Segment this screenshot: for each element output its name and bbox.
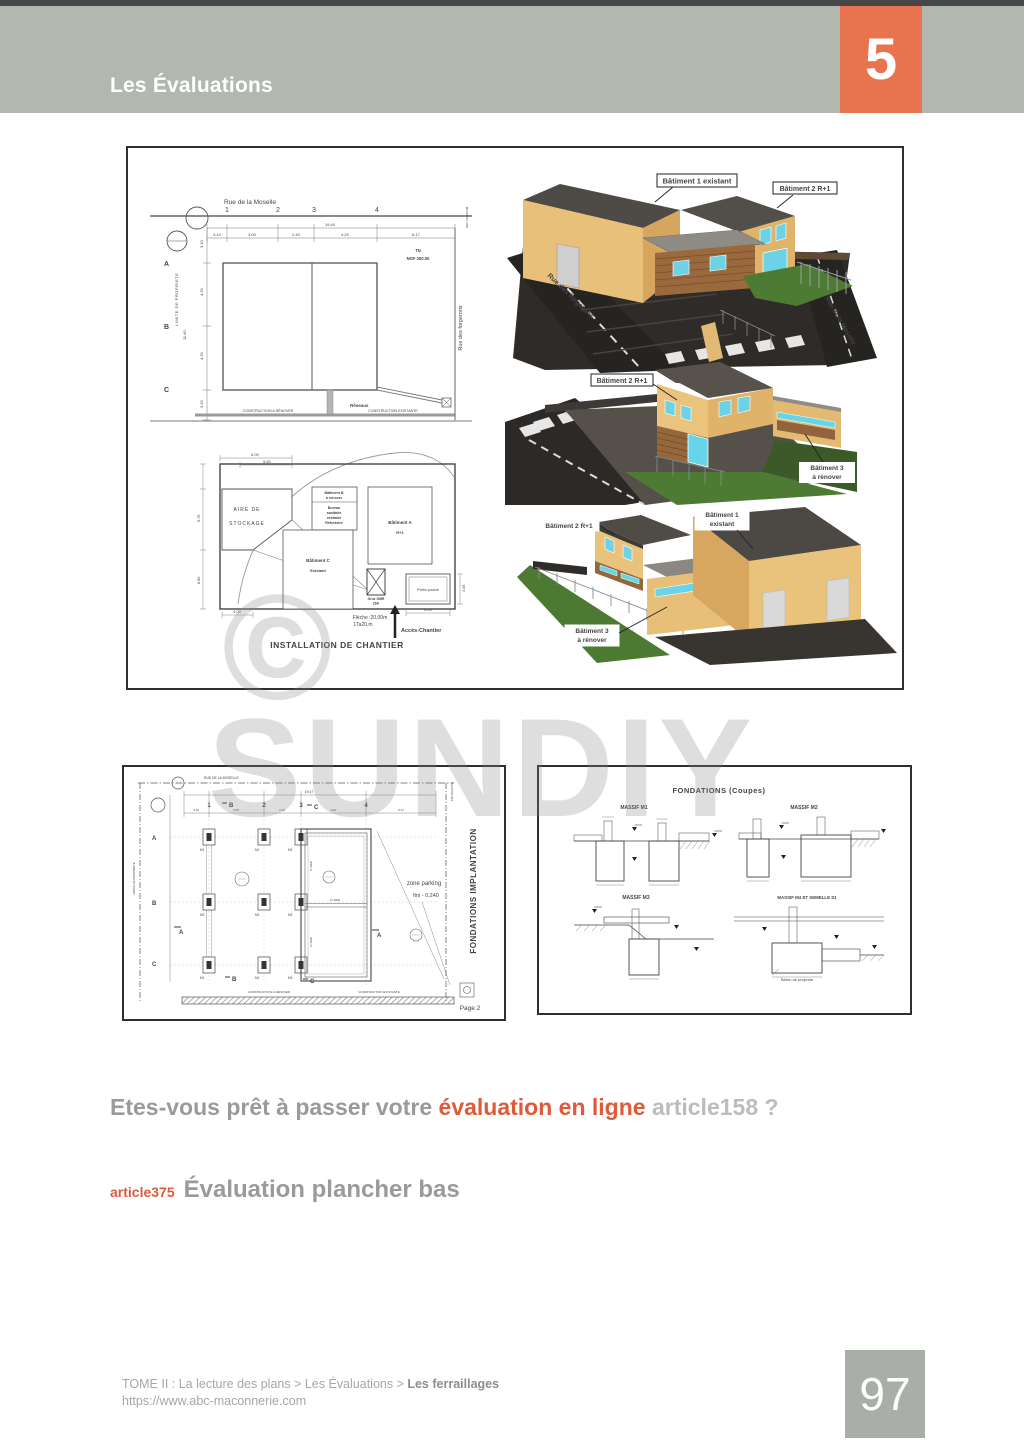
zone-parking-level: fini - 0,240 bbox=[413, 893, 439, 899]
aire-label: STOCKAGE bbox=[229, 521, 265, 527]
svg-text:M1: M1 bbox=[255, 976, 260, 980]
svg-text:LT 40/30: LT 40/30 bbox=[330, 898, 341, 902]
svg-text:Bâtiment B: Bâtiment B bbox=[325, 491, 344, 495]
svg-text:3.15: 3.15 bbox=[199, 399, 204, 408]
svg-text:1: 1 bbox=[207, 803, 211, 809]
page-number-badge: 97 bbox=[845, 1350, 925, 1438]
svg-text:M1: M1 bbox=[200, 976, 205, 980]
svg-text:4.05: 4.05 bbox=[462, 585, 466, 592]
svg-text:C: C bbox=[314, 805, 319, 811]
svg-text:2: 2 bbox=[276, 207, 280, 214]
street-right-label: Rue des forgerons bbox=[458, 305, 464, 350]
svg-text:C: C bbox=[310, 979, 315, 985]
svg-text:M1: M1 bbox=[255, 848, 260, 852]
svg-text:B: B bbox=[164, 324, 169, 331]
render1-building2-label: Bâtiment 2 R+1 bbox=[780, 186, 831, 193]
svg-text:3: 3 bbox=[299, 803, 303, 809]
render1-building1-label: Bâtiment 1 existant bbox=[663, 177, 732, 186]
footings: M1 M1 M2 M2 M2 M3 M1 M1 M3 bbox=[200, 829, 307, 980]
svg-text:B: B bbox=[152, 901, 157, 907]
batiment-c-state: Existant bbox=[310, 568, 326, 573]
fondations-coupes-drawing: FONDATIONS (Coupes) MASSIF M1 MASSIF M2 … bbox=[539, 767, 906, 1009]
batiment-a-label: Bâtiment A bbox=[388, 520, 412, 525]
render3-building1-label: Bâtiment 1 bbox=[705, 512, 739, 519]
article-heading: article375 Évaluation plancher bas bbox=[110, 1176, 460, 1204]
zone-parking-label: zone parking bbox=[407, 881, 441, 887]
svg-text:LT 40/30: LT 40/30 bbox=[309, 860, 313, 871]
breadcrumb-path: TOME II : La lecture des plans > Les Éva… bbox=[122, 1377, 407, 1391]
coupes-title: FONDATIONS (Coupes) bbox=[672, 786, 765, 795]
svg-text:3.00: 3.00 bbox=[248, 232, 257, 237]
article-title: Évaluation plancher bas bbox=[184, 1176, 460, 1204]
poutre-label: Préfa poutre bbox=[417, 587, 440, 592]
svg-text:4.20: 4.20 bbox=[341, 232, 350, 237]
svg-text:M2: M2 bbox=[288, 848, 293, 852]
svg-text:M2: M2 bbox=[200, 913, 205, 917]
grid-row-labels: A B C bbox=[164, 261, 169, 394]
svg-text:sanitaire: sanitaire bbox=[327, 511, 342, 515]
tn-label: TN bbox=[415, 248, 421, 253]
svg-text:2.40: 2.40 bbox=[279, 808, 285, 812]
batiment-a-level: R+1 bbox=[396, 530, 404, 535]
svg-text:3.10: 3.10 bbox=[199, 239, 204, 248]
svg-text:6.00: 6.00 bbox=[251, 453, 258, 457]
render-1-aerial-view: Bâtiment 1 existant Bâtiment 2 R+1 Rue d… bbox=[505, 158, 897, 373]
installation-chantier-drawing: AIRE DE STOCKAGE Bâtiment B à rénover Bu… bbox=[155, 432, 490, 682]
dim-labels-top: 3.10 3.00 2.40 4.20 6.17 bbox=[213, 232, 421, 237]
footer-breadcrumb: TOME II : La lecture des plans > Les Éva… bbox=[122, 1376, 499, 1410]
svg-text:4.00: 4.00 bbox=[233, 610, 240, 614]
svg-text:4.20: 4.20 bbox=[199, 287, 204, 296]
svg-text:5.75: 5.75 bbox=[197, 515, 201, 522]
acces-label: Accès-Chantier bbox=[401, 628, 442, 634]
page-ref: Page 2 bbox=[460, 1005, 481, 1012]
render3-building3-state: à rénover bbox=[577, 637, 607, 644]
site-plan-drawing: Rue de la Moselle 1 2 3 4 19.40 3.10 3.0… bbox=[150, 188, 485, 433]
question-article-ref: article158 ? bbox=[646, 1094, 779, 1120]
grid-column-labels: 1 2 3 4 bbox=[225, 207, 379, 214]
grue-label: Grue GMR bbox=[368, 597, 385, 601]
render3-building2-label: Bâtiment 2 R+1 bbox=[545, 523, 593, 530]
property-limit-label: LIMITE DE PROPRIETE bbox=[174, 273, 179, 326]
render-2-street-view: Bâtiment 2 R+1 Bâtiment 3 à rénover bbox=[505, 360, 897, 505]
svg-text:C: C bbox=[152, 962, 157, 968]
detail-m3 bbox=[574, 907, 714, 979]
svg-text:6.17: 6.17 bbox=[398, 808, 404, 812]
article-tag: article375 bbox=[110, 1184, 175, 1200]
render-3-garden-view: Bâtiment 2 R+1 Bâtiment 1 existant Bâtim… bbox=[505, 505, 897, 665]
svg-text:4: 4 bbox=[375, 207, 379, 214]
svg-text:2: 2 bbox=[262, 803, 266, 809]
svg-text:CONSTRUCTION EXISTANTE: CONSTRUCTION EXISTANTE bbox=[358, 990, 399, 994]
batiment-c-label: Bâtiment C bbox=[306, 558, 331, 563]
detail-m1 bbox=[574, 817, 722, 885]
svg-text:M2: M2 bbox=[255, 913, 260, 917]
dim-labels-left: 3.10 4.20 4.20 3.15 11.60 bbox=[182, 239, 204, 408]
svg-text:1: 1 bbox=[225, 207, 229, 214]
svg-text:Bureau: Bureau bbox=[328, 506, 340, 510]
massif-m2-label: MASSIF M2 bbox=[790, 805, 817, 811]
question-prefix: Etes-vous prêt à passer votre bbox=[110, 1094, 439, 1120]
dim-label: 19.40 bbox=[325, 222, 336, 227]
svg-text:3: 3 bbox=[312, 207, 316, 214]
svg-text:Réfectoire: Réfectoire bbox=[325, 521, 343, 525]
svg-text:C: C bbox=[164, 387, 169, 394]
reseaux-label: Réseaux bbox=[350, 403, 369, 408]
svg-text:A: A bbox=[164, 261, 169, 268]
svg-text:3.10: 3.10 bbox=[213, 232, 222, 237]
svg-text:à rénover: à rénover bbox=[326, 496, 343, 500]
massif-m1-label: MASSIF M1 bbox=[620, 805, 647, 811]
building-footprint bbox=[223, 263, 377, 390]
svg-text:A: A bbox=[179, 930, 184, 936]
svg-text:6.00: 6.00 bbox=[424, 608, 431, 612]
svg-text:3.10: 3.10 bbox=[193, 808, 199, 812]
svg-text:3.00: 3.00 bbox=[233, 808, 239, 812]
svg-text:A: A bbox=[152, 836, 157, 842]
property-limit-label: LIMITE DE PROPRIETE bbox=[132, 862, 136, 895]
svg-text:6.17: 6.17 bbox=[412, 232, 421, 237]
svg-text:B: B bbox=[232, 977, 237, 983]
render2-building2-label: Bâtiment 2 R+1 bbox=[597, 378, 648, 385]
street-label: RUE DE LA MOSELLE bbox=[204, 776, 239, 780]
render2-building3-label: Bâtiment 3 bbox=[810, 465, 844, 472]
beton-proprete-caption: Béton de propreté bbox=[781, 977, 814, 982]
footer-url: https://www.abc-maconnerie.com bbox=[122, 1393, 499, 1410]
svg-text:M3: M3 bbox=[288, 976, 293, 980]
svg-text:CONSTRUCTION A RÉNOVER: CONSTRUCTION A RÉNOVER bbox=[243, 408, 294, 413]
bottom-notes: CONSTRUCTION A RÉNOVER CONSTRUCTION EXIS… bbox=[248, 989, 400, 994]
street-label: Rue de la Moselle bbox=[224, 199, 276, 206]
fondations-implantation-drawing: RUE DE LA MOSELLE 19.47 1 2 3 4 B C B C … bbox=[124, 767, 500, 1015]
svg-text:4: 4 bbox=[364, 803, 368, 809]
svg-text:4.20: 4.20 bbox=[199, 351, 204, 360]
fleche-capacity: 1Ta20,m bbox=[353, 622, 372, 628]
massif-m3-label: MASSIF M3 bbox=[622, 895, 649, 901]
detail-m2 bbox=[739, 817, 886, 881]
svg-text:A: A bbox=[377, 933, 382, 939]
svg-text:CONSTRUCTION EXISTANTE: CONSTRUCTION EXISTANTE bbox=[368, 409, 418, 413]
grid-row-labels: A B C bbox=[152, 836, 157, 968]
svg-text:2.40: 2.40 bbox=[292, 232, 301, 237]
detail-m4 bbox=[734, 907, 884, 977]
svg-text:M1: M1 bbox=[200, 848, 205, 852]
corner-note: EDF TELECOM bbox=[465, 206, 469, 228]
chapter-number-badge: 5 bbox=[840, 6, 922, 113]
svg-text:11.60: 11.60 bbox=[182, 330, 187, 340]
svg-text:M3: M3 bbox=[288, 913, 293, 917]
svg-text:4.20: 4.20 bbox=[330, 808, 336, 812]
chapter-title: Les Évaluations bbox=[110, 74, 273, 98]
render3-building1-state: existant bbox=[710, 521, 735, 528]
render3-building3-label: Bâtiment 3 bbox=[575, 628, 609, 635]
ngf-label: NGF 200.00 bbox=[407, 256, 430, 261]
aire-label: AIRE DE bbox=[233, 507, 260, 513]
svg-text:LT 40/30: LT 40/30 bbox=[309, 936, 313, 947]
massif-m4-label: MASSIF M4 ET SEMELLE S1 bbox=[777, 895, 837, 900]
fleche-label: Flèche :20,00m bbox=[353, 615, 387, 621]
corner-note: EDF TELECOM bbox=[450, 783, 454, 801]
implantation-side-title: FONDATIONS IMPLANTATION bbox=[469, 828, 478, 953]
svg-text:vestiaire: vestiaire bbox=[327, 516, 342, 520]
svg-text:CONSTRUCTION A RÉNOVER: CONSTRUCTION A RÉNOVER bbox=[248, 989, 291, 994]
installation-title: INSTALLATION DE CHANTIER bbox=[270, 640, 404, 650]
render2-building3-state: à rénover bbox=[812, 474, 842, 481]
grue-ref: 28A bbox=[373, 602, 380, 606]
svg-text:8.60: 8.60 bbox=[197, 577, 201, 584]
breadcrumb-current: Les ferraillages bbox=[407, 1377, 499, 1391]
online-evaluation-question: Etes-vous prêt à passer votre évaluation… bbox=[110, 1094, 779, 1121]
question-highlight: évaluation en ligne bbox=[439, 1094, 646, 1120]
dim-label: 19.47 bbox=[305, 790, 314, 794]
svg-text:5.50: 5.50 bbox=[263, 460, 270, 464]
